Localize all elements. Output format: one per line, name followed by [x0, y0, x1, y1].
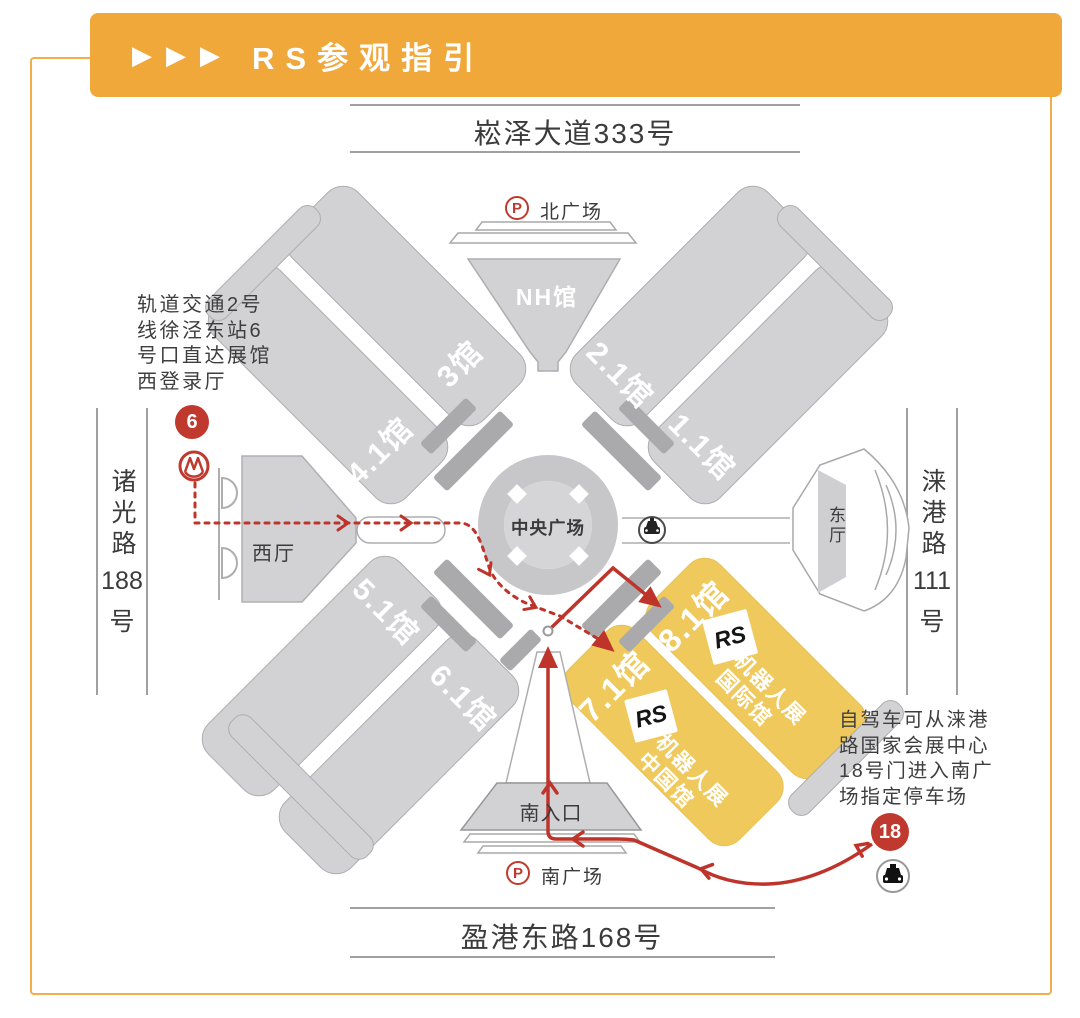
parking-icon: P	[505, 196, 529, 220]
page-title: RS参观指引	[252, 33, 485, 78]
metro-exit-6-badge: 6	[175, 405, 209, 439]
metro-access-note: 轨道交通2号 线徐泾东站6 号口直达展馆 西登录厅	[137, 293, 272, 395]
venue-map: ▶▶▶ RS参观指引	[0, 0, 1080, 1018]
east-hall-label: 东厅	[823, 506, 848, 546]
road-label-north: 崧泽大道333号	[400, 112, 750, 152]
south-plaza-label: 南广场	[541, 862, 604, 889]
south-entrance-label: 南入口	[511, 797, 591, 826]
west-hall-label: 西厅	[252, 537, 296, 566]
road-label-east: 涞港路 111 号	[904, 468, 960, 638]
triple-arrow-icon: ▶▶▶	[132, 40, 234, 71]
road-label-west: 诸光路 188 号	[94, 468, 150, 638]
road-label-south: 盈港东路168号	[387, 916, 737, 956]
drive-access-note: 自驾车可从涞港 路国家会展中心 18号门进入南广 场指定停车场	[839, 708, 994, 810]
gate-18-badge: 18	[871, 813, 909, 851]
north-plaza-label: 北广场	[540, 197, 603, 224]
central-plaza-label: 中央广场	[488, 515, 608, 540]
header-banner: ▶▶▶ RS参观指引	[90, 13, 1062, 97]
parking-icon: P	[506, 861, 530, 885]
